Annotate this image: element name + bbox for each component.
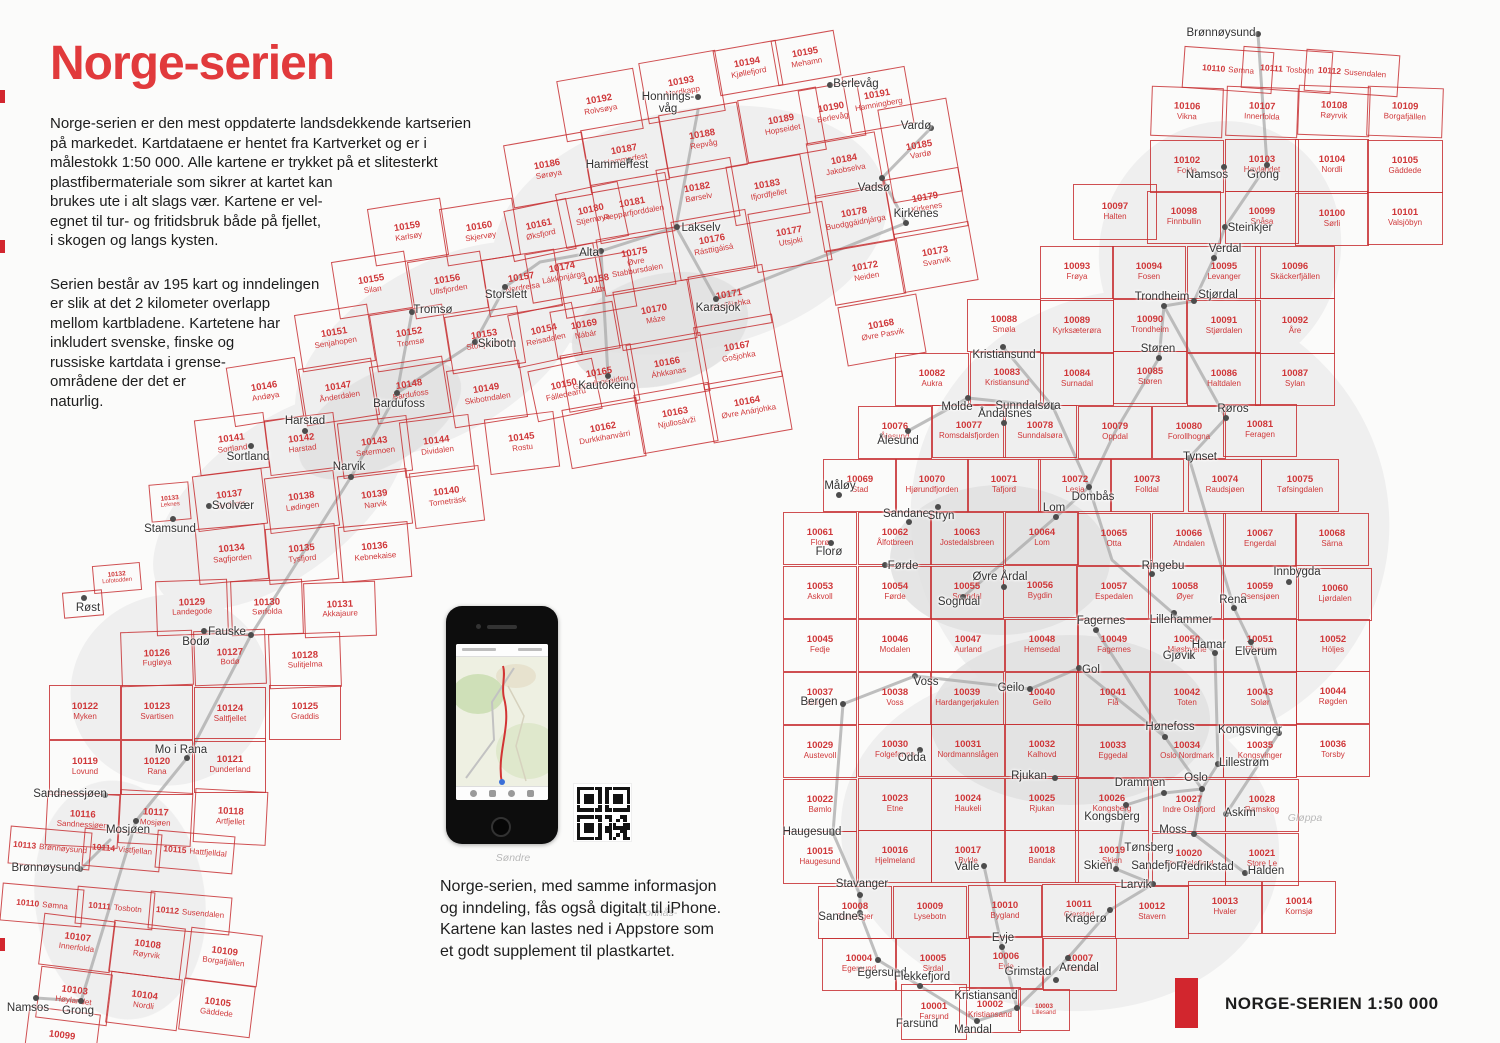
city-label: Elverum bbox=[1235, 646, 1277, 658]
map-sheet-10091: 10091Stjørdalen bbox=[1187, 300, 1261, 353]
page-title: Norge-serien bbox=[50, 40, 490, 88]
sheet-name: Oslo Nordmark bbox=[1160, 752, 1214, 761]
sheet-name: Hardangerjøkulen bbox=[935, 699, 999, 708]
qr-module bbox=[616, 833, 620, 837]
map-sheet-10015: 10015Haugesund bbox=[783, 831, 857, 884]
city-label: Førde bbox=[888, 560, 919, 572]
sheet-name: Oppdal bbox=[1102, 433, 1128, 442]
city-label: Karasjok bbox=[696, 302, 741, 314]
city-label: Hønefoss bbox=[1145, 721, 1194, 733]
city-label: Sandnessjøen bbox=[33, 788, 107, 800]
city-label: Sandnes bbox=[818, 911, 863, 923]
city-label: Harstad bbox=[285, 415, 325, 427]
city-label: Voss bbox=[914, 676, 939, 688]
sheet-name: Dividalen bbox=[421, 445, 455, 458]
city-label: Skien bbox=[1084, 860, 1113, 872]
map-sheet-10093: 10093Frøya bbox=[1040, 246, 1114, 299]
map-sheet-10057: 10057Espedalen bbox=[1077, 566, 1151, 619]
sheet-name: Tosbotn bbox=[113, 903, 142, 914]
city-dot bbox=[1264, 162, 1270, 168]
qr-module bbox=[627, 826, 631, 830]
sheet-name: Røyrvik bbox=[132, 949, 160, 961]
map-sheet-10009: 10009Lysebotn bbox=[893, 886, 967, 939]
city-label: Røst bbox=[76, 602, 100, 614]
sheet-name: Torneträsk bbox=[429, 496, 467, 509]
city-dot bbox=[674, 224, 680, 230]
qr-module bbox=[591, 830, 595, 834]
sheet-name: Aurland bbox=[954, 646, 982, 655]
sheet-name: Lødingen bbox=[286, 501, 320, 514]
city-label: Kristiansund bbox=[972, 349, 1035, 361]
city-label: Storslett bbox=[485, 289, 527, 301]
map-sheet-10131: 10131Akkajaure bbox=[303, 580, 377, 637]
qr-module bbox=[613, 837, 617, 841]
map-sheet-10089: 10089Kyrksæterøra bbox=[1040, 300, 1114, 353]
map-sheet-10004: 10004Egersund bbox=[822, 938, 896, 991]
city-label: Stjørdal bbox=[1198, 289, 1238, 301]
map-sheet-10119: 10119Lovund bbox=[49, 740, 121, 795]
sheet-name: Engerdal bbox=[1244, 540, 1276, 549]
city-label: Berlevåg bbox=[833, 78, 878, 90]
map-sheet-10157: 10157Nordreisa bbox=[481, 249, 563, 318]
sheet-name: Romsdalsfjorden bbox=[939, 432, 999, 441]
sheet-name: Øyer bbox=[1176, 593, 1193, 602]
sheet-name: Eggedal bbox=[1098, 752, 1127, 761]
city-dot bbox=[1052, 775, 1058, 781]
sheet-name: Sylan bbox=[1285, 380, 1305, 389]
sheet-name: Innerfolda bbox=[1244, 112, 1280, 122]
sheet-name: Sulitjelma bbox=[288, 660, 323, 670]
sheet-name: Toten bbox=[1177, 699, 1197, 708]
city-label: Flekkefjord bbox=[894, 971, 950, 983]
map-sheet-10103: 10103Høylandet bbox=[1225, 139, 1299, 192]
map-sheet-10047: 10047Aurland bbox=[931, 619, 1005, 672]
city-dot bbox=[1053, 977, 1059, 983]
sheet-name: Skäckerfjällen bbox=[1270, 273, 1320, 282]
sheet-name: Fugløya bbox=[143, 658, 172, 668]
sheet-name: Haugesund bbox=[800, 858, 841, 867]
city-dot bbox=[1156, 355, 1162, 361]
map-sheet-10172: 10172Neiden bbox=[826, 238, 907, 306]
map-sheet-10082: 10082Aukra bbox=[895, 353, 969, 406]
city-label: Skibotn bbox=[478, 338, 516, 350]
map-sheet-10029: 10029Austevoll bbox=[783, 725, 857, 778]
city-dot bbox=[1199, 786, 1205, 792]
sheet-name: Karlsøy bbox=[395, 231, 423, 244]
city-dot bbox=[1053, 514, 1059, 520]
city-label: Mandal bbox=[954, 1024, 992, 1036]
city-label: Stamsund bbox=[144, 523, 196, 535]
map-sheet-10106: 10106Vikna bbox=[1150, 86, 1224, 138]
sheet-name: Røgden bbox=[1319, 698, 1347, 707]
map-sheet-10024: 10024Haukeli bbox=[931, 778, 1005, 831]
city-label: Narvik bbox=[333, 461, 366, 473]
map-sheet-10163: 10163Njullosávži bbox=[633, 382, 718, 454]
city-dot bbox=[302, 428, 308, 434]
city-dot bbox=[1191, 298, 1197, 304]
city-label: Moss bbox=[1159, 824, 1186, 836]
map-sheet-10011: 10011Gjerstad bbox=[1042, 884, 1116, 937]
map-sheet-10104: 10104Nordli bbox=[1295, 139, 1369, 192]
city-label: Mo i Rana bbox=[155, 744, 207, 756]
map-sheet-10053: 10053Askvoll bbox=[783, 566, 857, 619]
sheet-name: Särna bbox=[1321, 540, 1342, 549]
sheet-name: Fagernes bbox=[1097, 646, 1131, 655]
city-label: Valle bbox=[955, 861, 980, 873]
city-label: Askim bbox=[1224, 807, 1255, 819]
sheet-name: Espedalen bbox=[1095, 593, 1133, 602]
qr-module bbox=[598, 837, 602, 841]
map-sheet-10087: 10087Sylan bbox=[1255, 353, 1335, 406]
map-sheet-10025: 10025Rjukan bbox=[1005, 778, 1079, 831]
sheet-name: Forollhogna bbox=[1168, 433, 1210, 442]
sheet-name: Askvoll bbox=[807, 593, 832, 602]
city-label: Røros bbox=[1217, 403, 1248, 415]
app-button-placeholder bbox=[518, 648, 542, 651]
sheet-name: Haukeli bbox=[955, 805, 982, 814]
map-sheet-10003: 10003Lillesand bbox=[1018, 989, 1070, 1031]
city-label: Innbygda bbox=[1273, 566, 1320, 578]
sheet-name: Frøya bbox=[1067, 273, 1088, 282]
phone-home-button bbox=[491, 817, 511, 837]
sheet-name: Øvre Anárjohka bbox=[721, 403, 777, 421]
sheet-name: Susendalen bbox=[182, 908, 225, 921]
city-dot bbox=[1161, 790, 1167, 796]
map-sheet-10042: 10042Toten bbox=[1150, 672, 1224, 725]
city-dot bbox=[1161, 303, 1167, 309]
sheet-name: Surnadal bbox=[1061, 380, 1093, 389]
sheet-name: Bygdin bbox=[1028, 592, 1052, 601]
sheet-name: Svartisen bbox=[140, 713, 173, 722]
city-label: Kongsvinger bbox=[1218, 724, 1282, 736]
map-sheet-10109: 10109Borgafjällen bbox=[1366, 86, 1444, 139]
city-label: Rena bbox=[1219, 594, 1247, 606]
app-locate-icon bbox=[470, 790, 477, 797]
map-sheet-10048: 10048Hemsedal bbox=[1005, 619, 1079, 672]
city-label: Støren bbox=[1141, 343, 1176, 355]
footer-banner: NORGE-SERIEN 1:50 000 bbox=[1175, 978, 1495, 1038]
city-dot bbox=[1065, 955, 1071, 961]
map-sheet-10058: 10058Øyer bbox=[1148, 566, 1222, 619]
sheet-name: Austevoll bbox=[804, 752, 836, 761]
map-sheet-10086: 10086Haltdalen bbox=[1187, 353, 1261, 406]
city-dot bbox=[33, 995, 39, 1001]
map-sheet-10092: 10092Åre bbox=[1255, 298, 1335, 354]
sheet-name: Lovund bbox=[72, 768, 98, 777]
city-label: Mosjøen bbox=[106, 824, 150, 836]
sheet-name: Finnbullin bbox=[1167, 218, 1201, 227]
map-sheet-10033: 10033Eggedal bbox=[1076, 725, 1150, 778]
city-label: Grimstad bbox=[1005, 966, 1052, 978]
city-label: Hamar bbox=[1192, 639, 1227, 651]
sheet-name: Haltdalen bbox=[1207, 380, 1241, 389]
city-dot bbox=[917, 983, 923, 989]
map-sheet-10021: 10021Store Le bbox=[1225, 833, 1299, 886]
city-label: Fagernes bbox=[1077, 615, 1126, 627]
map-sheet-10014: 10014Kornsjø bbox=[1262, 881, 1336, 934]
city-label: Bodø bbox=[182, 636, 210, 648]
city-dot bbox=[840, 701, 846, 707]
sheet-name: Kristiansund bbox=[985, 379, 1029, 388]
sheet-name: Lom bbox=[1034, 539, 1050, 548]
city-label: Fauske bbox=[208, 626, 246, 638]
map-sheet-10039: 10039Hardangerjøkulen bbox=[930, 672, 1004, 725]
sheet-name: Tromsø bbox=[397, 337, 425, 350]
sheet-name: Bodø bbox=[220, 657, 239, 667]
city-label: Gjøvik bbox=[1163, 650, 1196, 662]
city-dot bbox=[999, 944, 1005, 950]
sheet-name: Skibotndalen bbox=[464, 391, 511, 407]
map-sheet-10041: 10041Flå bbox=[1076, 672, 1150, 725]
phone-graphic bbox=[446, 606, 558, 844]
map-sheet-10108: 10108Røyrvik bbox=[1297, 85, 1371, 137]
sheet-name: Neiden bbox=[854, 271, 881, 284]
sheet-name: Børselv bbox=[685, 191, 713, 205]
sheet-number: 10003 bbox=[1035, 1003, 1053, 1010]
city-label: Halden bbox=[1248, 865, 1284, 877]
map-sheet-10020: 10020Ytre Oslofjord bbox=[1152, 833, 1226, 886]
map-sheet-10073: 10073Folldal bbox=[1110, 459, 1184, 512]
sheet-name: Etne bbox=[887, 805, 903, 814]
city-label: Dombås bbox=[1072, 491, 1115, 503]
city-dot bbox=[1107, 907, 1113, 913]
map-sheet-10084: 10084Surnadal bbox=[1040, 353, 1114, 406]
map-sheet-10031: 10031Nordmannslågen bbox=[931, 724, 1005, 777]
sheet-name: Brønnøysund bbox=[39, 843, 88, 856]
map-sheet-10141: 10141Sortland bbox=[194, 412, 270, 476]
city-label: Kongsberg bbox=[1084, 811, 1140, 823]
sheet-name: Saltfjellet bbox=[214, 715, 246, 724]
map-sheet-10043: 10043Solør bbox=[1223, 672, 1297, 725]
sheet-name: Halten bbox=[1103, 213, 1126, 222]
map-sheet-10067: 10067Engerdal bbox=[1223, 513, 1297, 566]
city-label: Oslo bbox=[1184, 772, 1208, 784]
sheet-name: Kebnekaise bbox=[354, 551, 396, 564]
map-sheet-10076: 10076Ålesund bbox=[858, 406, 932, 459]
sheet-name: Vistfjellan bbox=[118, 845, 153, 857]
city-label: Odda bbox=[898, 752, 926, 764]
map-sheet-10096: 10096Skäckerfjällen bbox=[1255, 246, 1335, 299]
sheet-number: 10113 bbox=[13, 840, 37, 851]
city-label: Sandane bbox=[883, 508, 929, 520]
city-label: Grong bbox=[1247, 169, 1279, 181]
map-sheet-10010: 10010Bygland bbox=[968, 885, 1042, 938]
city-label: Svolvær bbox=[212, 500, 254, 512]
sheet-name: Førde bbox=[884, 593, 905, 602]
sheet-name: Hattfjelldal bbox=[189, 847, 227, 859]
city-dot bbox=[394, 390, 400, 396]
city-label: Måløy bbox=[824, 480, 855, 492]
city-label: Lillestrøm bbox=[1219, 757, 1269, 769]
city-dot bbox=[1191, 831, 1197, 837]
sheet-name: Höljes bbox=[1322, 646, 1344, 655]
map-sheet-10105: 10105Gäddede bbox=[1367, 140, 1443, 193]
app-title-bar bbox=[456, 644, 548, 657]
app-menu-icon bbox=[527, 790, 534, 797]
sheet-name: Stavern bbox=[1138, 913, 1166, 922]
map-sheet-10046: 10046Modalen bbox=[858, 619, 932, 672]
sheet-name: Ljørdalen bbox=[1318, 595, 1351, 604]
map-sheet-10071: 10071Tafjord bbox=[967, 459, 1041, 512]
sheet-name: Dunderland bbox=[209, 766, 250, 775]
map-sheet-10012: 10012Stavern bbox=[1115, 886, 1189, 939]
map-sheet-10017: 10017Bykle bbox=[931, 830, 1005, 883]
sheet-name: Susendalen bbox=[1344, 68, 1387, 80]
city-dot bbox=[1286, 579, 1292, 585]
city-dot bbox=[1093, 627, 1099, 633]
map-sheet-10109: 10109Borgafjällen bbox=[185, 927, 263, 987]
sheet-name: Vardø bbox=[910, 149, 932, 161]
sheet-name: Atndalen bbox=[1173, 540, 1205, 549]
sheet-name: Åre bbox=[1289, 327, 1301, 336]
sheet-name: Sømna bbox=[42, 901, 68, 912]
map-sheet-10148: 10148Bardufoss bbox=[369, 356, 451, 425]
sheet-name: Bandak bbox=[1028, 857, 1055, 866]
city-label: Kristiansand bbox=[954, 990, 1017, 1002]
city-label: Molde bbox=[941, 401, 972, 413]
sheet-name: Støren bbox=[1138, 378, 1162, 387]
phone-screen bbox=[456, 644, 548, 800]
city-dot bbox=[1086, 484, 1092, 490]
trim-mark bbox=[0, 90, 5, 103]
sheet-name: Nordmannslågen bbox=[938, 751, 999, 760]
city-label: Hammerfest bbox=[586, 159, 649, 171]
city-label: Florø bbox=[816, 546, 843, 558]
sheet-name: Narvik bbox=[364, 499, 388, 511]
map-sheet-10074: 10074Raudsjøen bbox=[1188, 459, 1262, 512]
app-note: Norge-serien, med samme informasjon og i… bbox=[440, 876, 790, 962]
map-sheet-10045: 10045Fedje bbox=[783, 619, 857, 672]
map-sheet-10099: 10099Snåsa bbox=[1225, 191, 1299, 244]
sheet-name: Folldal bbox=[1135, 486, 1159, 495]
sheet-number: 10112 bbox=[1318, 66, 1342, 77]
map-sheet-10068: 10068Särna bbox=[1295, 513, 1369, 566]
sheet-name: Landegode bbox=[172, 607, 212, 617]
city-label: Geilo bbox=[998, 682, 1025, 694]
sheet-name: Lysebotn bbox=[914, 913, 946, 922]
qr-module bbox=[627, 808, 631, 812]
city-dot bbox=[836, 492, 842, 498]
city-dot bbox=[905, 428, 911, 434]
city-label: Tønsberg bbox=[1124, 842, 1173, 854]
map-sheet-10036: 10036Torsby bbox=[1296, 724, 1370, 777]
map-sheet-10079: 10079Oppdal bbox=[1078, 406, 1152, 459]
sheet-number: 10099 bbox=[48, 1029, 76, 1043]
sheet-name: Bygland bbox=[991, 912, 1020, 921]
map-sheet-10066: 10066Atndalen bbox=[1152, 513, 1226, 566]
sheet-name: Borgafjällen bbox=[202, 955, 245, 969]
city-dot bbox=[695, 94, 701, 100]
sheet-name: Otta bbox=[1106, 540, 1121, 549]
sheet-name: Smøla bbox=[992, 326, 1015, 335]
city-label: Bardufoss bbox=[373, 398, 425, 410]
city-dot bbox=[1255, 31, 1261, 37]
sheet-name: Rjukan bbox=[1030, 805, 1055, 814]
qr-module bbox=[598, 808, 602, 812]
map-sheet-10065: 10065Otta bbox=[1077, 513, 1151, 566]
sheet-name: Artfjellet bbox=[215, 817, 244, 827]
app-title-text-placeholder bbox=[462, 648, 496, 651]
map-sheet-10018: 10018Bandak bbox=[1005, 830, 1079, 883]
sheet-name: Valsjöbyn bbox=[1388, 219, 1422, 228]
map-sheet-10107: 10107Innerfolda bbox=[38, 913, 116, 973]
sheet-number: 10110 bbox=[1202, 63, 1226, 74]
sheet-name: Andøya bbox=[252, 391, 281, 404]
sheet-name: Indre Oslofjord bbox=[1163, 806, 1215, 815]
map-sheet-10123: 10123Svartisen bbox=[121, 685, 193, 740]
city-dot bbox=[1113, 866, 1119, 872]
city-dot bbox=[1162, 734, 1168, 740]
city-label: Grong bbox=[62, 1005, 94, 1017]
sheet-name: Borgafjällen bbox=[1384, 112, 1427, 122]
city-label: Ålesund bbox=[877, 435, 919, 447]
sheet-name: Rostu bbox=[512, 443, 534, 454]
city-label: Larvik bbox=[1121, 879, 1152, 891]
city-dot bbox=[1248, 639, 1254, 645]
sheet-name: Sagfjorden bbox=[213, 553, 252, 565]
sheet-number: 10111 bbox=[1260, 63, 1283, 74]
sheet-name: Graddis bbox=[291, 713, 319, 722]
sheet-name: Hjørundfjorden bbox=[906, 486, 959, 495]
sheet-name: Solør bbox=[1250, 699, 1269, 708]
sheet-name: Voss bbox=[886, 699, 903, 708]
city-label: Brønnøysund bbox=[1186, 27, 1255, 39]
trim-mark bbox=[0, 240, 5, 253]
city-dot bbox=[348, 474, 354, 480]
city-label: Namsos bbox=[1186, 169, 1228, 181]
map-sheet-10125: 10125Graddis bbox=[269, 685, 341, 740]
map-sheet-10016: 10016Hjelmeland bbox=[858, 830, 932, 883]
map-sheet-10136: 10136Kebnekaise bbox=[338, 521, 413, 583]
city-label: Lom bbox=[1043, 502, 1065, 514]
city-label: Honnings- våg bbox=[642, 91, 694, 115]
city-label: Vardø bbox=[901, 120, 931, 132]
sheet-name: Máze bbox=[646, 314, 667, 326]
sheet-name: Repvåg bbox=[690, 138, 719, 152]
sheet-name: Levanger bbox=[1207, 273, 1240, 282]
map-sheet-10023: 10023Etne bbox=[858, 778, 932, 831]
map-sheet-10070: 10070Hjørundfjorden bbox=[895, 459, 969, 512]
app-toolbar bbox=[456, 786, 548, 800]
city-dot bbox=[827, 82, 833, 88]
city-label: Kirkenes bbox=[894, 208, 939, 220]
city-dot bbox=[170, 516, 176, 522]
city-dot bbox=[903, 220, 909, 226]
city-label: Tynset bbox=[1183, 451, 1217, 463]
city-label: Åndalsnes bbox=[978, 408, 1032, 420]
qr-code bbox=[573, 783, 632, 842]
city-label: Bergen bbox=[800, 696, 837, 708]
sheet-name: Nordli bbox=[132, 1001, 154, 1012]
city-dot bbox=[1123, 802, 1129, 808]
sheet-name: Sørli bbox=[1324, 220, 1340, 229]
city-label: Vadsø bbox=[858, 182, 890, 194]
sheet-name: Ålfotbreen bbox=[877, 539, 913, 548]
map-sheet-10019: 10019Skien bbox=[1075, 830, 1149, 883]
sheet-name: Silan bbox=[363, 284, 382, 296]
map-sheet-10102: 10102Folda bbox=[1150, 140, 1224, 193]
sheet-name: Tysfjord bbox=[288, 554, 317, 565]
sheet-name: Røyrvik bbox=[1320, 111, 1347, 121]
city-label: Stavanger bbox=[836, 878, 888, 890]
sheet-name: Kornsjø bbox=[1285, 908, 1313, 917]
sheet-name: Rana bbox=[147, 768, 166, 777]
sheet-number: 10114 bbox=[92, 843, 116, 854]
map-sheet-10195: 10195Mehamn bbox=[770, 30, 841, 86]
geo-label: Gløppa bbox=[1288, 812, 1322, 824]
city-dot bbox=[1211, 255, 1217, 261]
sheet-name: Flå bbox=[1107, 699, 1118, 708]
